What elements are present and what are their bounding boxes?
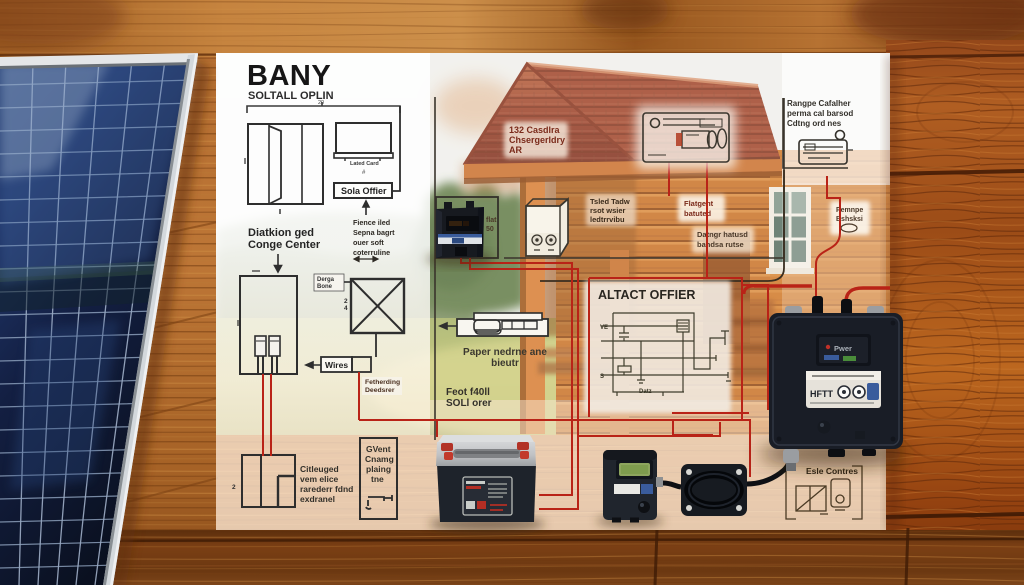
svg-text:Diatkion ged: Diatkion ged bbox=[248, 227, 314, 239]
svg-text:vem elice: vem elice bbox=[300, 474, 339, 484]
svg-text:4: 4 bbox=[344, 305, 348, 312]
svg-text:Citleuged: Citleuged bbox=[300, 464, 339, 474]
svg-text:50: 50 bbox=[486, 226, 494, 233]
svg-text:Bone: Bone bbox=[317, 284, 333, 290]
svg-text:bieutr: bieutr bbox=[491, 358, 519, 369]
svg-text:20: 20 bbox=[318, 100, 324, 106]
svg-text:flat: flat bbox=[486, 217, 497, 224]
svg-text:VE: VE bbox=[600, 325, 608, 331]
svg-text:Wires: Wires bbox=[325, 360, 348, 370]
svg-text:Datngr hatusd: Datngr hatusd bbox=[697, 230, 748, 239]
svg-text:Lated Card: Lated Card bbox=[350, 161, 379, 167]
svg-text:rarederr fdnd: rarederr fdnd bbox=[300, 484, 353, 494]
svg-text:Cdtng ord nes: Cdtng ord nes bbox=[787, 119, 842, 128]
svg-text:BANY: BANY bbox=[247, 60, 331, 92]
svg-text:Rangpe Cafalher: Rangpe Cafalher bbox=[787, 99, 851, 108]
svg-text:ALTACT OFFIER: ALTACT OFFIER bbox=[598, 288, 695, 302]
svg-text:Chsergerldry: Chsergerldry bbox=[509, 135, 565, 145]
svg-text:tne: tne bbox=[371, 474, 384, 484]
svg-text:coterruline: coterruline bbox=[353, 248, 390, 257]
svg-text:Sepna bagrt: Sepna bagrt bbox=[353, 228, 395, 237]
svg-text:Feot f40ll: Feot f40ll bbox=[446, 387, 490, 398]
svg-text:Deedsrer: Deedsrer bbox=[365, 387, 395, 394]
svg-text:2: 2 bbox=[344, 298, 348, 305]
svg-text:Tsled Tadw: Tsled Tadw bbox=[590, 197, 630, 206]
svg-text:Fience iled: Fience iled bbox=[353, 218, 390, 227]
svg-text:AR: AR bbox=[509, 145, 522, 155]
svg-text:Conge Center: Conge Center bbox=[248, 239, 321, 251]
svg-text:bandsa rutse: bandsa rutse bbox=[697, 240, 744, 249]
svg-text:Paper nedrne ane: Paper nedrne ane bbox=[463, 347, 547, 358]
svg-text:perma cal barsod: perma cal barsod bbox=[787, 109, 853, 118]
svg-text:ouer soft: ouer soft bbox=[353, 238, 384, 247]
svg-text:Fetherding: Fetherding bbox=[365, 379, 400, 386]
svg-text:S: S bbox=[600, 374, 604, 380]
svg-text:HFTT: HFTT bbox=[810, 389, 833, 399]
svg-text:SOLl orer: SOLl orer bbox=[446, 398, 492, 409]
svg-text:Derga: Derga bbox=[317, 277, 335, 283]
svg-text:Pwer: Pwer bbox=[834, 344, 852, 353]
svg-text:Flatgent: Flatgent bbox=[684, 199, 714, 208]
svg-text:ledtrrvibu: ledtrrvibu bbox=[590, 215, 625, 224]
svg-text:Cnamg: Cnamg bbox=[365, 454, 394, 464]
svg-text:132 Casdlra: 132 Casdlra bbox=[509, 125, 561, 135]
svg-text:plaing: plaing bbox=[366, 464, 391, 474]
svg-text:exdranel: exdranel bbox=[300, 494, 335, 504]
svg-text:rsot wsier: rsot wsier bbox=[590, 206, 626, 215]
svg-text:Sola Offier: Sola Offier bbox=[341, 186, 387, 196]
svg-text:Datz: Datz bbox=[639, 389, 652, 395]
svg-text:2: 2 bbox=[232, 484, 236, 491]
svg-text:GVent: GVent bbox=[366, 444, 391, 454]
svg-text:Esle Contres: Esle Contres bbox=[806, 466, 858, 476]
